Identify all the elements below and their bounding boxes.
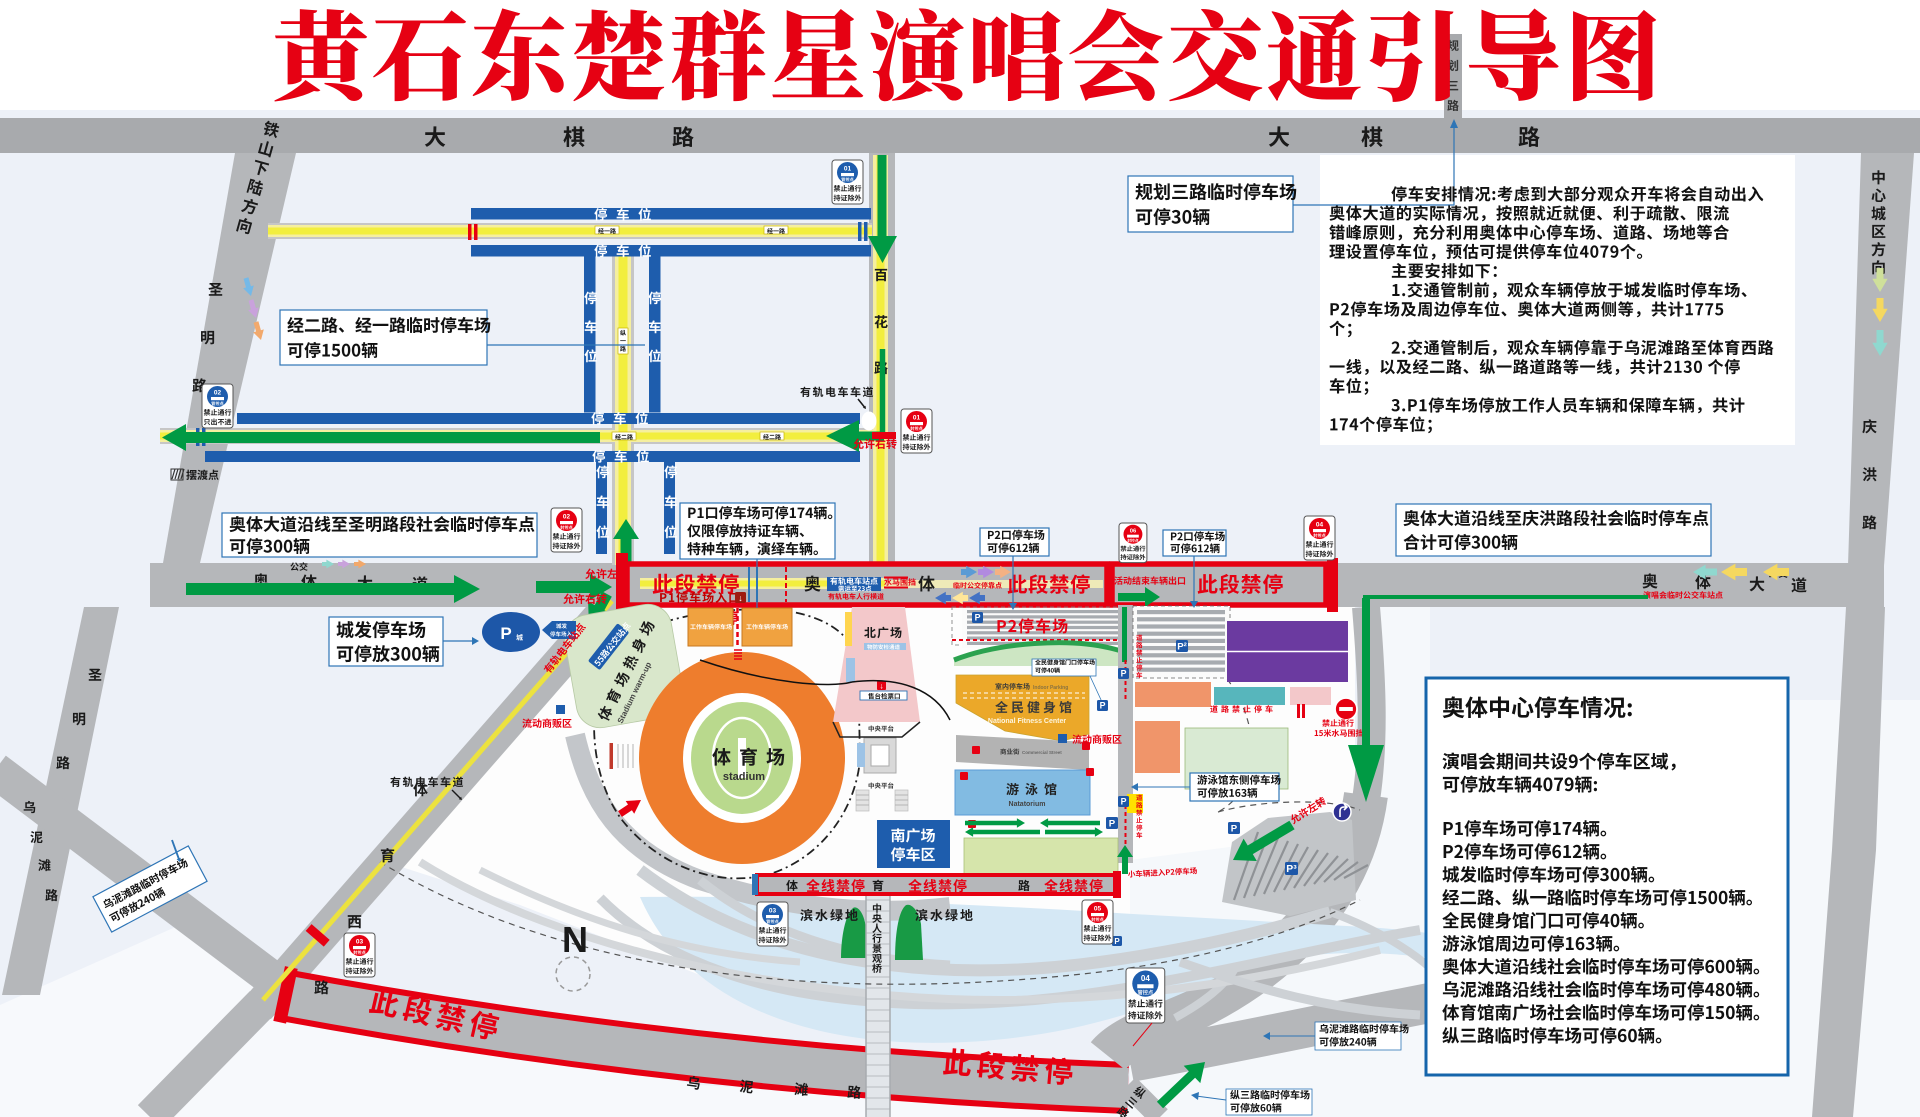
svg-text:Natatorium: Natatorium <box>1009 801 1046 808</box>
svg-text:P: P <box>1100 701 1106 711</box>
svg-text:Indoor Parking: Indoor Parking <box>1033 685 1068 691</box>
svg-text:02: 02 <box>214 389 222 396</box>
svg-text:04: 04 <box>1316 521 1324 528</box>
svg-text:P: P <box>1114 937 1120 946</box>
svg-text:↓: ↓ <box>738 593 743 603</box>
svg-text:P: P <box>500 624 511 643</box>
svg-text:02: 02 <box>563 513 571 520</box>
svg-text:↓: ↓ <box>880 682 884 691</box>
svg-text:P²: P² <box>1177 641 1187 652</box>
svg-text:National Fitness Center: National Fitness Center <box>988 718 1066 725</box>
svg-text:P: P <box>1231 823 1238 834</box>
svg-text:03: 03 <box>356 938 364 945</box>
svg-text:P: P <box>975 613 981 623</box>
svg-text:P: P <box>1121 669 1127 679</box>
svg-text:P³: P³ <box>1286 864 1297 875</box>
svg-text:N: N <box>562 919 588 960</box>
svg-text:01: 01 <box>913 414 921 421</box>
svg-text:03: 03 <box>769 907 777 914</box>
svg-text:P: P <box>1109 818 1116 829</box>
svg-text:01: 01 <box>844 165 852 172</box>
svg-text:stadium: stadium <box>723 771 765 783</box>
svg-text:04: 04 <box>1141 974 1151 983</box>
svg-text:05: 05 <box>1094 905 1102 912</box>
svg-text:P: P <box>1121 797 1127 807</box>
svg-text:06: 06 <box>1130 528 1137 534</box>
svg-text:Commercial Street: Commercial Street <box>1022 750 1062 755</box>
